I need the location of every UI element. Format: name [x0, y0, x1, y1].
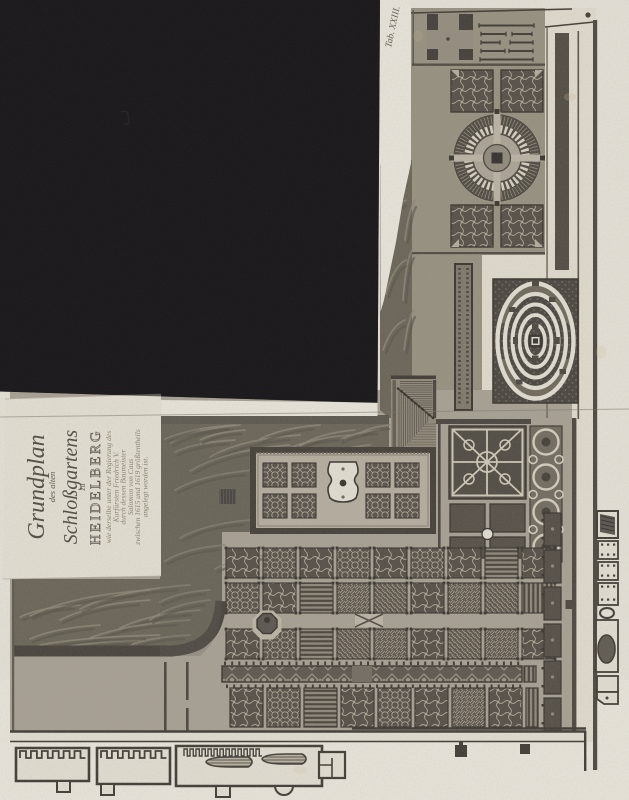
svg-text:angelegt worden ist.: angelegt worden ist. — [141, 456, 150, 517]
svg-text:des alten: des alten — [47, 472, 57, 502]
svg-text:zu: zu — [78, 483, 87, 491]
svg-text:HEIDELBERG: HEIDELBERG — [88, 429, 104, 545]
